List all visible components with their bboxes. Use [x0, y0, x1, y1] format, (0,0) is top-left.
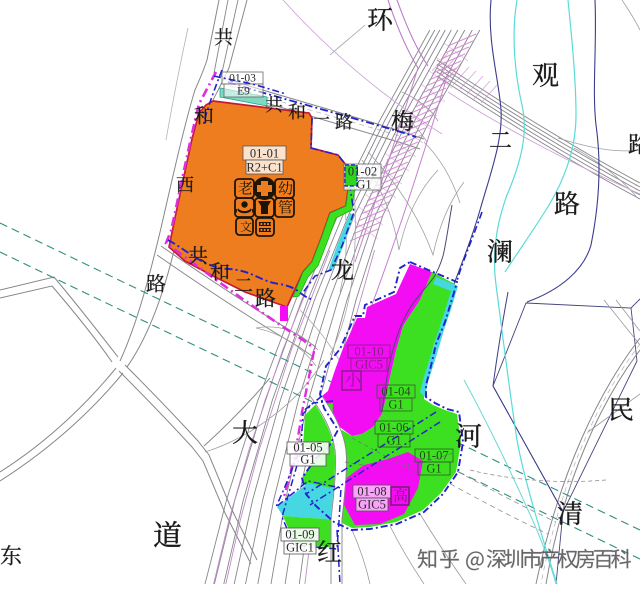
svg-text:01-06: 01-06: [379, 421, 408, 435]
svg-text:G1: G1: [388, 398, 403, 412]
svg-text:01-04: 01-04: [381, 385, 411, 399]
svg-text:G1: G1: [386, 434, 401, 448]
svg-text:GIC1: GIC1: [286, 541, 314, 555]
svg-text:01-01: 01-01: [250, 147, 279, 161]
svg-text:G1: G1: [426, 462, 441, 476]
svg-text:01-02: 01-02: [348, 165, 377, 179]
svg-text:01-03: 01-03: [229, 73, 256, 85]
svg-text:GIC5: GIC5: [355, 358, 383, 372]
svg-text:GIC5: GIC5: [358, 498, 386, 512]
svg-text:G1: G1: [356, 178, 371, 192]
svg-text:R2+C1: R2+C1: [246, 161, 282, 175]
svg-text:01-10: 01-10: [354, 345, 383, 359]
svg-text:01-08: 01-08: [357, 485, 386, 499]
svg-text:E9: E9: [237, 86, 250, 98]
svg-text:01-07: 01-07: [419, 449, 448, 463]
svg-text:01-09: 01-09: [285, 528, 314, 542]
svg-text:G1: G1: [300, 453, 315, 467]
